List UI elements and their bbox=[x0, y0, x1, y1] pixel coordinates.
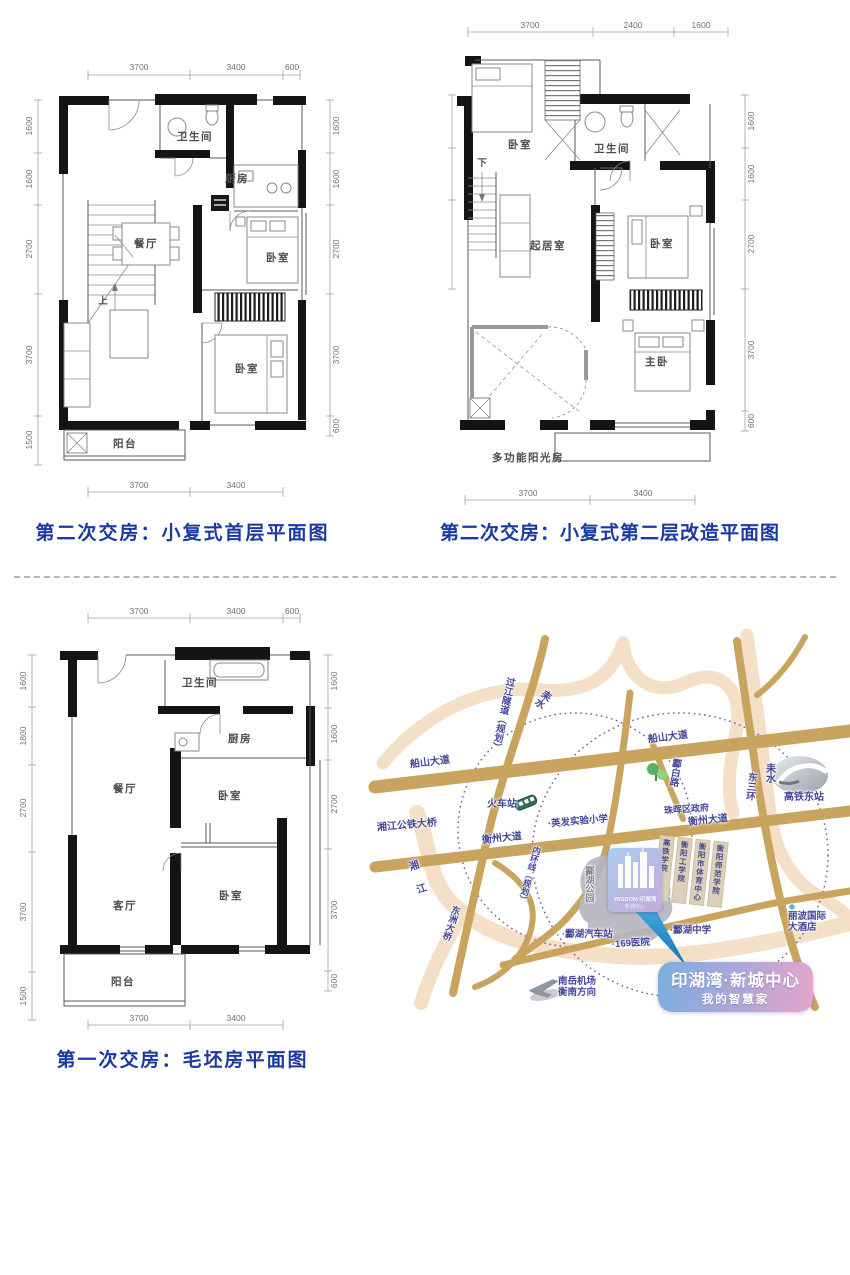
dim-label: 1500 bbox=[24, 430, 34, 449]
dim-label: 3700 bbox=[24, 345, 34, 364]
dim-label: 3700 bbox=[329, 900, 339, 919]
train-icon bbox=[514, 794, 538, 812]
caption-plan-c: 第一次交房：毛坯房平面图 bbox=[15, 1045, 350, 1072]
room-label-bed1: 卧室 bbox=[218, 789, 242, 802]
hotel-dot-marker bbox=[789, 904, 795, 910]
dim-label: 600 bbox=[331, 419, 341, 433]
dim-label: 1600 bbox=[331, 116, 341, 135]
room-label-dining: 餐厅 bbox=[112, 782, 137, 795]
room-label-master: 主卧 bbox=[645, 355, 669, 368]
project-callout-title: 印湖湾·新城中心 bbox=[671, 967, 800, 991]
caption-plan-b: 第二次交房：小复式第二层改造平面图 bbox=[430, 518, 790, 545]
room-label-bed2: 卧室 bbox=[650, 237, 674, 250]
dim-label: 600 bbox=[329, 974, 339, 988]
dim-label: 3700 bbox=[130, 62, 149, 72]
dim-label: 600 bbox=[285, 62, 299, 72]
plan-b-furniture bbox=[472, 64, 704, 391]
dim-label: 600 bbox=[285, 606, 299, 616]
hsr-train-icon bbox=[772, 756, 828, 794]
room-label-bath: 卫生间 bbox=[177, 130, 213, 143]
dim-label: 1600 bbox=[746, 164, 756, 183]
stair-direction-label: 下 bbox=[477, 158, 487, 169]
dim-label: 3700 bbox=[519, 488, 538, 498]
dim-label: 3400 bbox=[634, 488, 653, 498]
fridge bbox=[211, 195, 229, 211]
room-label-bed1: 卧室 bbox=[508, 138, 532, 151]
project-marker: WISDOM 印湖湾 新城中心 bbox=[608, 848, 662, 912]
room-label-bath: 卫生间 bbox=[594, 142, 630, 155]
room-label-living: 客厅 bbox=[112, 899, 137, 912]
dim-label: 1600 bbox=[24, 169, 34, 188]
dim-label: 3700 bbox=[130, 1013, 149, 1023]
colleges-block: 高铁学院 衡阳工学院 衡阳市体育中心 衡阳师范学院 bbox=[653, 835, 728, 907]
room-label-bath: 卫生间 bbox=[182, 676, 218, 689]
dim-label: 2400 bbox=[624, 20, 643, 30]
dim-label: 3700 bbox=[130, 480, 149, 490]
dim-label: 1600 bbox=[692, 20, 711, 30]
room-label-kitchen: 厨房 bbox=[225, 172, 249, 185]
dim-label: 1600 bbox=[18, 671, 28, 690]
plan-c-walls bbox=[60, 647, 315, 954]
plan-b-wardrobe-hatch bbox=[545, 60, 580, 120]
dim-label: 1600 bbox=[329, 671, 339, 690]
floorplan-brochure-page: 3700 3400 600 1600 1600 2700 3700 1500 1… bbox=[0, 0, 850, 1275]
floor-plan-duplex-level2: 3700 2400 1600 1600 1600 2700 3700 600 3… bbox=[440, 20, 780, 520]
dim-label: 3400 bbox=[227, 606, 246, 616]
dim-label: 1500 bbox=[18, 986, 28, 1005]
project-marker-sub: 新城中心 bbox=[608, 903, 662, 910]
floor-plan-duplex-level1: 3700 3400 600 1600 1600 2700 3700 1500 1… bbox=[15, 55, 350, 515]
plan-c-fixtures bbox=[175, 660, 268, 751]
room-label-bed1: 卧室 bbox=[266, 251, 290, 264]
dim-label: 600 bbox=[746, 414, 756, 428]
dim-label: 1800 bbox=[18, 726, 28, 745]
room-label-bed2: 卧室 bbox=[235, 362, 259, 375]
project-marker-title: WISDOM 印湖湾 bbox=[609, 894, 660, 903]
dim-label: 3700 bbox=[18, 902, 28, 921]
airplane-icon bbox=[527, 978, 562, 1003]
room-label-living: 起居室 bbox=[529, 239, 566, 252]
plan-b-sunroom bbox=[470, 327, 586, 418]
dim-label: 1600 bbox=[329, 724, 339, 743]
dim-label: 3700 bbox=[521, 20, 540, 30]
dim-label: 2700 bbox=[331, 239, 341, 258]
room-label-sunroom: 多功能阳光房 bbox=[492, 451, 564, 464]
plan-b-hatch-strip bbox=[630, 290, 702, 310]
room-label-balcony: 阳台 bbox=[111, 975, 135, 988]
dim-label: 3400 bbox=[227, 1013, 246, 1023]
dim-label: 3400 bbox=[227, 480, 246, 490]
dim-label: 3400 bbox=[227, 62, 246, 72]
section-divider bbox=[14, 576, 836, 578]
dim-label: 3700 bbox=[746, 340, 756, 359]
dim-label: 2700 bbox=[329, 794, 339, 813]
project-callout-subtitle: 我的智慧家 bbox=[702, 991, 770, 1007]
dim-label: 1600 bbox=[746, 111, 756, 130]
stair-direction-label: 上 bbox=[98, 295, 108, 307]
dim-label: 2700 bbox=[18, 798, 28, 817]
plan-b-wardrobe2-hatch bbox=[596, 213, 614, 280]
dim-label: 3700 bbox=[130, 606, 149, 616]
dim-label: 1600 bbox=[24, 116, 34, 135]
project-callout: 印湖湾·新城中心 我的智慧家 bbox=[658, 962, 813, 1012]
dim-label: 1600 bbox=[331, 169, 341, 188]
plan-a-hatch-strip bbox=[215, 293, 285, 321]
room-label-bed2: 卧室 bbox=[219, 889, 243, 902]
dim-label: 3700 bbox=[331, 345, 341, 364]
floor-plan-bare-shell: 3700 3400 600 1600 1800 2700 3700 1500 1… bbox=[15, 605, 350, 1040]
dim-label: 2700 bbox=[746, 234, 756, 253]
dim-label: 2700 bbox=[24, 239, 34, 258]
room-label-dining: 餐厅 bbox=[133, 237, 158, 250]
building-skyline-icon bbox=[608, 848, 662, 888]
caption-plan-a: 第二次交房：小复式首层平面图 bbox=[15, 518, 350, 545]
room-label-kitchen: 厨房 bbox=[228, 732, 252, 745]
room-label-balcony: 阳台 bbox=[113, 437, 137, 450]
